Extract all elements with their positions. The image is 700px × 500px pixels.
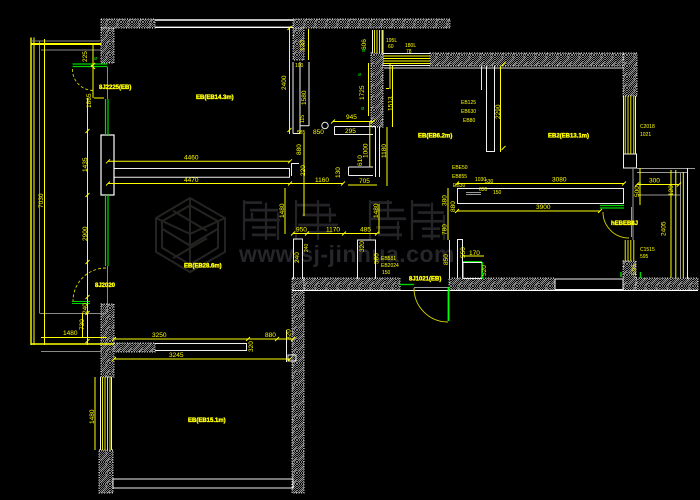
svg-text:130: 130	[335, 167, 342, 178]
svg-text:295: 295	[345, 128, 356, 135]
svg-text:225: 225	[82, 51, 89, 62]
svg-text:1480: 1480	[279, 203, 286, 218]
svg-text:4460: 4460	[184, 155, 199, 162]
svg-text:1021: 1021	[640, 132, 651, 138]
svg-text:C2018: C2018	[640, 124, 655, 130]
svg-text:500: 500	[634, 186, 641, 197]
svg-text:240: 240	[82, 303, 89, 314]
svg-text:320: 320	[359, 241, 366, 252]
svg-text:240: 240	[294, 252, 301, 263]
svg-text:1580: 1580	[301, 90, 308, 105]
svg-text:1513: 1513	[388, 96, 395, 111]
svg-text:585: 585	[297, 130, 306, 136]
svg-text:EB855: EB855	[452, 174, 467, 180]
svg-text:1725: 1725	[359, 85, 366, 100]
svg-text:EBE50: EBE50	[452, 165, 468, 171]
svg-text:780: 780	[442, 224, 449, 235]
svg-text:1160: 1160	[315, 177, 329, 184]
svg-text:C1515: C1515	[640, 247, 655, 253]
svg-text:hEBEB8J: hEBEB8J	[611, 221, 638, 227]
svg-text:850: 850	[443, 254, 450, 265]
svg-text:850: 850	[313, 129, 324, 136]
svg-text:580: 580	[374, 253, 381, 264]
svg-text:880: 880	[450, 201, 457, 212]
svg-text:8J2225(EB): 8J2225(EB)	[99, 85, 131, 91]
svg-text:EB125: EB125	[461, 100, 476, 106]
svg-text:EB(EB15.1m): EB(EB15.1m)	[188, 418, 226, 424]
svg-text:EB630: EB630	[461, 109, 476, 115]
svg-text:1480: 1480	[373, 203, 380, 218]
svg-text:100: 100	[295, 63, 304, 69]
svg-text:520: 520	[481, 265, 488, 276]
svg-text:705: 705	[359, 178, 370, 185]
svg-text:EB(EB28.6m): EB(EB28.6m)	[184, 264, 222, 270]
svg-text:7030: 7030	[38, 193, 45, 208]
svg-text:950: 950	[296, 227, 307, 234]
svg-text:595: 595	[631, 264, 638, 275]
svg-text:1480: 1480	[63, 330, 78, 337]
svg-text:www.sj-jinhua.com: www.sj-jinhua.com	[238, 241, 455, 267]
svg-text:320: 320	[248, 341, 255, 352]
svg-text:170: 170	[469, 250, 480, 257]
svg-text:880: 880	[296, 144, 303, 155]
svg-text:EB2024: EB2024	[381, 263, 399, 269]
svg-text:78: 78	[406, 49, 412, 55]
svg-text:880: 880	[265, 332, 276, 339]
svg-text:320: 320	[286, 329, 293, 340]
svg-text:300: 300	[649, 178, 660, 185]
svg-text:120: 120	[668, 185, 675, 196]
svg-text:1435: 1435	[82, 157, 89, 172]
svg-text:4470: 4470	[184, 177, 199, 184]
svg-text:380: 380	[442, 195, 449, 206]
svg-text:945: 945	[346, 114, 357, 121]
svg-text:8J2020: 8J2020	[95, 283, 116, 289]
svg-text:240: 240	[304, 243, 310, 252]
svg-text:595: 595	[640, 254, 649, 260]
svg-text:610: 610	[357, 155, 364, 166]
svg-text:EB(EB6.2m): EB(EB6.2m)	[418, 134, 452, 140]
svg-text:60: 60	[388, 44, 394, 50]
svg-text:1865: 1865	[86, 93, 93, 108]
svg-text:730: 730	[79, 319, 86, 330]
svg-text:2290: 2290	[495, 104, 502, 119]
svg-text:8J1021(EB): 8J1021(EB)	[409, 277, 441, 283]
svg-text:3250: 3250	[152, 332, 167, 339]
svg-text:3245: 3245	[169, 352, 184, 359]
svg-text:150: 150	[382, 270, 391, 276]
svg-text:EB80: EB80	[463, 118, 475, 124]
svg-text:1480: 1480	[89, 409, 96, 424]
svg-text:EB581: EB581	[381, 256, 396, 262]
svg-text:630: 630	[479, 187, 488, 193]
svg-text:EB30: EB30	[453, 183, 465, 189]
svg-text:485: 485	[360, 227, 371, 234]
svg-text:115: 115	[300, 115, 306, 123]
svg-text:3080: 3080	[552, 177, 567, 184]
svg-text:530: 530	[485, 179, 494, 185]
svg-text:130: 130	[300, 40, 307, 51]
svg-text:550: 550	[460, 247, 467, 258]
svg-text:220: 220	[300, 165, 307, 176]
svg-text:150: 150	[493, 190, 502, 196]
svg-text:EB(EB14.3m): EB(EB14.3m)	[196, 95, 234, 101]
svg-text:1170: 1170	[326, 227, 340, 234]
svg-text:1180: 1180	[381, 144, 388, 158]
svg-text:2400: 2400	[281, 75, 288, 90]
svg-text:2900: 2900	[82, 226, 89, 241]
svg-text:3900: 3900	[536, 204, 551, 211]
svg-text:2405: 2405	[661, 221, 668, 236]
svg-text:EB2(EB13.1m): EB2(EB13.1m)	[548, 134, 589, 140]
